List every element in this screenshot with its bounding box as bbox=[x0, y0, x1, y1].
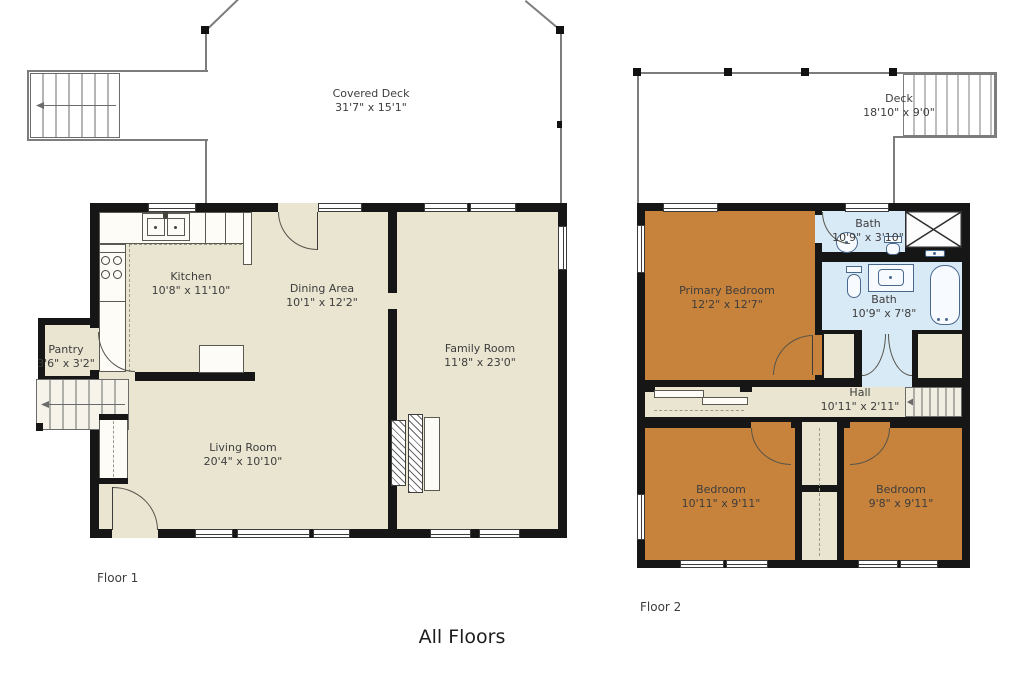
window bbox=[237, 529, 310, 538]
tub-faucet bbox=[945, 318, 948, 321]
room-label-kitchen: Kitchen 10'8" x 11'10" bbox=[152, 270, 231, 297]
room-name: Primary Bedroom bbox=[679, 284, 775, 298]
primary-door-opening bbox=[815, 335, 822, 375]
window bbox=[845, 203, 889, 212]
toilet-tank-icon bbox=[846, 266, 862, 273]
closet-rod-line bbox=[113, 421, 114, 477]
sink-drain bbox=[889, 276, 892, 279]
deck-edge bbox=[27, 139, 208, 141]
counter-divider bbox=[225, 212, 226, 244]
room-dims: 10'9" x 7'8" bbox=[852, 307, 917, 321]
room-name: Pantry bbox=[37, 343, 95, 357]
tall-cabinet bbox=[243, 212, 252, 265]
kitchen-living-wall bbox=[135, 372, 255, 381]
room-dims: 18'10" x 9'0" bbox=[863, 106, 935, 120]
window bbox=[558, 226, 567, 270]
faucet-icon bbox=[163, 211, 168, 219]
room-label-covered-deck: Covered Deck 31'7" x 15'1" bbox=[333, 87, 410, 114]
window bbox=[470, 203, 516, 212]
room-name: Living Room bbox=[204, 441, 283, 455]
door-leaf bbox=[317, 212, 318, 250]
wall-stub bbox=[740, 387, 752, 392]
room-dims: 9'8" x 9'11" bbox=[869, 497, 934, 511]
dining-family-opening bbox=[388, 293, 397, 309]
window bbox=[148, 203, 196, 212]
deck-edge bbox=[205, 31, 207, 72]
counter-overhang-line bbox=[129, 244, 247, 245]
closet-wall-cap bbox=[99, 478, 128, 484]
room-dims: 20'4" x 10'10" bbox=[204, 455, 283, 469]
deck-edge bbox=[893, 136, 895, 203]
deck-door-opening bbox=[278, 203, 318, 212]
toilet-bowl-icon bbox=[886, 243, 900, 255]
front-door-opening bbox=[112, 529, 158, 538]
window bbox=[424, 203, 468, 212]
sliding-glass-door bbox=[663, 203, 718, 212]
floor2-label: Floor 2 bbox=[640, 600, 681, 614]
window bbox=[637, 225, 645, 273]
deck-edge bbox=[893, 136, 997, 138]
room-label-hall: Hall 10'11" x 2'11" bbox=[821, 386, 900, 413]
deck-post bbox=[201, 26, 209, 34]
room-name: Bath bbox=[832, 217, 904, 231]
bath-door-opening bbox=[815, 215, 822, 243]
window bbox=[313, 529, 350, 538]
deck-edge bbox=[205, 139, 207, 205]
sliding-door bbox=[702, 397, 748, 405]
window bbox=[726, 560, 768, 568]
room-label-bedroom-right: Bedroom 9'8" x 9'11" bbox=[869, 483, 934, 510]
room-name: Kitchen bbox=[152, 270, 231, 284]
room-name: Bedroom bbox=[869, 483, 934, 497]
shower-icon bbox=[905, 211, 962, 248]
room-name: Deck bbox=[863, 92, 935, 106]
room-dims: 10'8" x 11'10" bbox=[152, 284, 231, 298]
tub-faucet bbox=[937, 318, 940, 321]
hall-stairs-icon bbox=[905, 387, 962, 417]
room-dims: 11'8" x 23'0" bbox=[444, 356, 516, 370]
room-dims: 10'11" x 2'11" bbox=[821, 400, 900, 414]
kitchen-island-cabinet bbox=[199, 345, 244, 373]
linen-closet bbox=[824, 334, 854, 378]
window bbox=[318, 203, 362, 212]
deck-edge bbox=[27, 70, 208, 72]
deck-post bbox=[801, 68, 809, 76]
room-dims: 10'11" x 9'11" bbox=[682, 497, 761, 511]
deck-edge bbox=[560, 31, 562, 203]
room-dims: 10'9" x 3'10" bbox=[832, 231, 904, 245]
room-label-bath-upper: Bath 10'9" x 3'10" bbox=[832, 217, 904, 244]
shower-control bbox=[933, 252, 936, 255]
room-dims: 3'6" x 3'2" bbox=[37, 357, 95, 371]
closet-wall-cap bbox=[99, 414, 128, 420]
room-name: Dining Area bbox=[286, 282, 358, 296]
room-dims: 12'2" x 12'7" bbox=[679, 298, 775, 312]
sliding-door bbox=[654, 390, 704, 398]
stove-burner bbox=[101, 270, 110, 279]
hall-side-closet bbox=[918, 334, 962, 378]
room-label-living: Living Room 20'4" x 10'10" bbox=[204, 441, 283, 468]
room-label-pantry: Pantry 3'6" x 3'2" bbox=[37, 343, 95, 370]
room-label-bath-lower: Bath 10'9" x 7'8" bbox=[852, 293, 917, 320]
counter-divider bbox=[205, 212, 206, 244]
deck-roof-cut bbox=[205, 0, 241, 31]
deck-post bbox=[724, 68, 732, 76]
window bbox=[637, 494, 645, 540]
room-label-deck2: Deck 18'10" x 9'0" bbox=[863, 92, 935, 119]
stove-burner bbox=[113, 270, 122, 279]
closet-rod-line bbox=[654, 410, 744, 411]
bathtub-icon bbox=[930, 265, 960, 325]
room-label-family: Family Room 11'8" x 23'0" bbox=[444, 342, 516, 369]
fireplace-hatch bbox=[408, 414, 423, 493]
window bbox=[900, 560, 938, 568]
room-label-bedroom-left: Bedroom 10'11" x 9'11" bbox=[682, 483, 761, 510]
room-name: Family Room bbox=[444, 342, 516, 356]
deck-post bbox=[889, 68, 897, 76]
window bbox=[430, 529, 471, 538]
room-name: Bath bbox=[852, 293, 917, 307]
stove-burner bbox=[101, 256, 110, 265]
stair-wall-cap bbox=[36, 423, 43, 431]
deck-edge bbox=[637, 72, 639, 203]
sink-drain bbox=[154, 226, 157, 229]
stove-burner bbox=[113, 256, 122, 265]
room-label-dining: Dining Area 10'1" x 12'2" bbox=[286, 282, 358, 309]
deck-post bbox=[557, 121, 562, 128]
deck-stairs-icon bbox=[30, 73, 120, 138]
room-name: Hall bbox=[821, 386, 900, 400]
deck-post bbox=[556, 26, 564, 34]
window bbox=[479, 529, 520, 538]
sink-drain bbox=[174, 226, 177, 229]
room-label-primary-bedroom: Primary Bedroom 12'2" x 12'7" bbox=[679, 284, 775, 311]
room-dims: 31'7" x 15'1" bbox=[333, 101, 410, 115]
page-title: All Floors bbox=[419, 626, 506, 648]
room-name: Covered Deck bbox=[333, 87, 410, 101]
room-name: Bedroom bbox=[682, 483, 761, 497]
window bbox=[195, 529, 233, 538]
floor-plan-canvas: Covered Deck 31'7" x 15'1" bbox=[0, 0, 1024, 681]
deck-edge bbox=[27, 70, 29, 141]
closet-rod-line bbox=[819, 428, 820, 556]
fireplace-hatch bbox=[391, 420, 406, 486]
room-dims: 10'1" x 12'2" bbox=[286, 296, 358, 310]
deck-edge bbox=[995, 72, 997, 138]
window bbox=[858, 560, 898, 568]
fireplace-hearth bbox=[424, 417, 440, 491]
window bbox=[680, 560, 724, 568]
deck-post bbox=[633, 68, 641, 76]
floor1-label: Floor 1 bbox=[97, 571, 138, 585]
